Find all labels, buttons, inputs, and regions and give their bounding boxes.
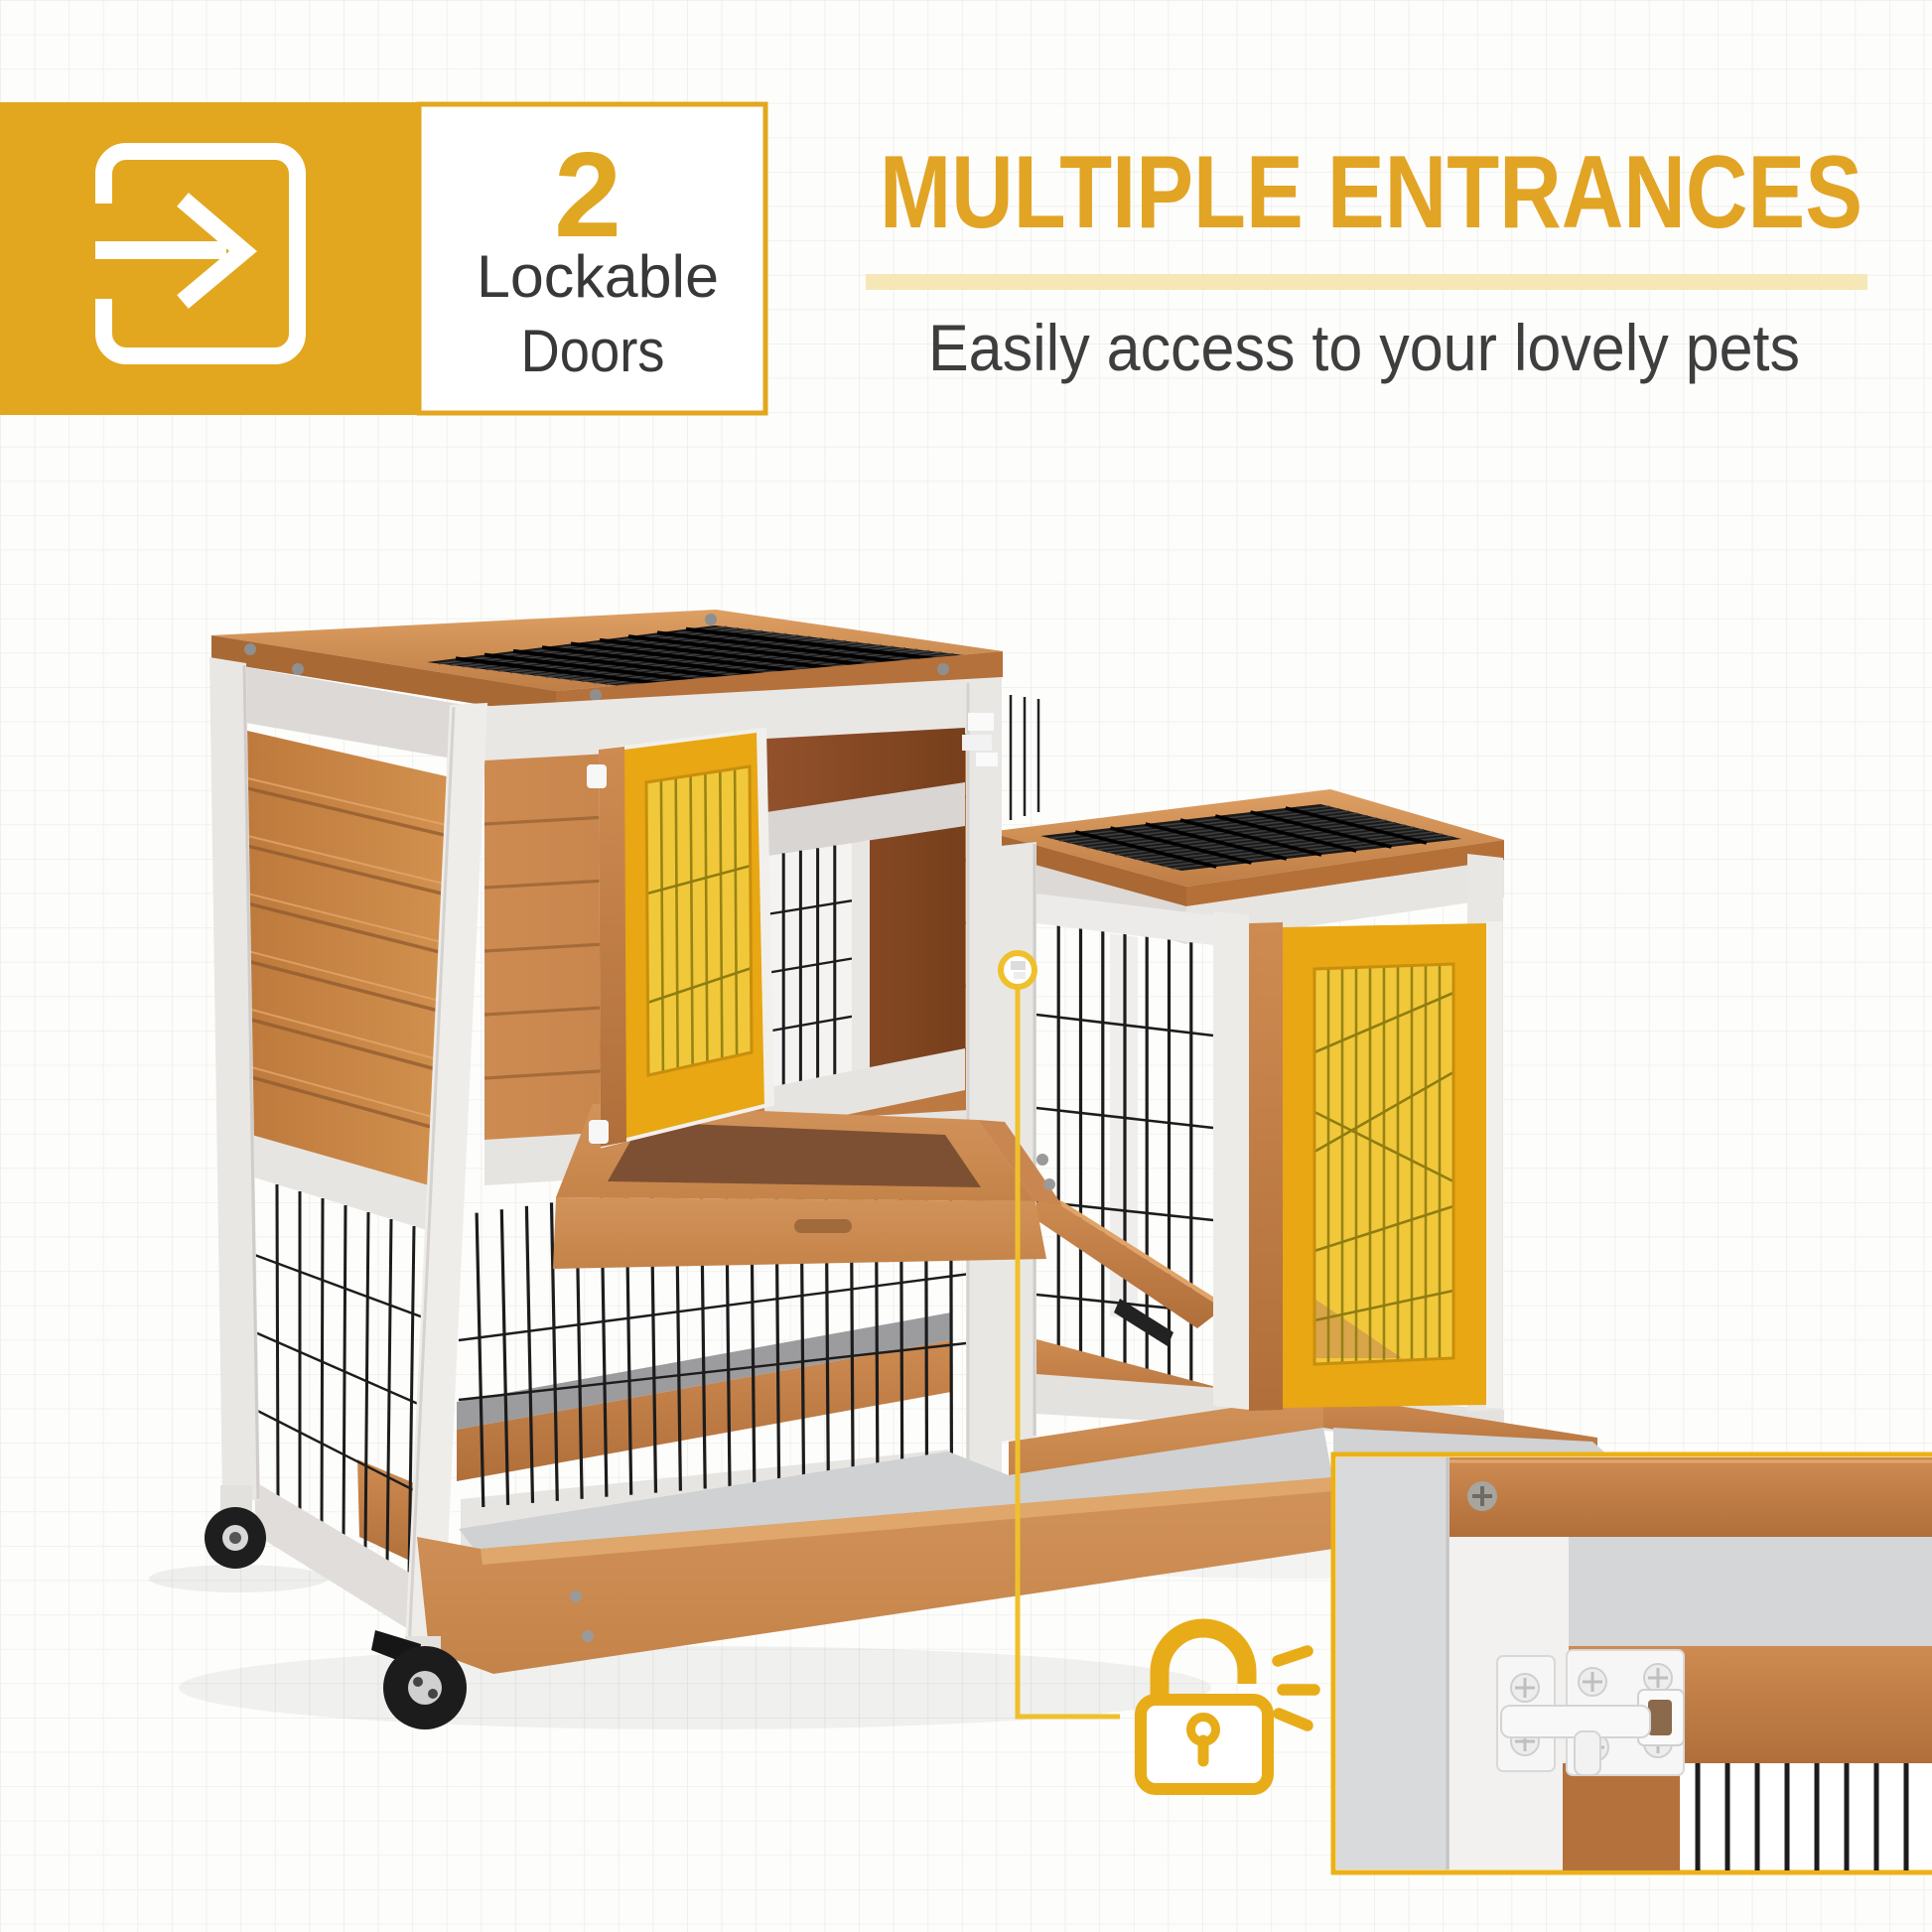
svg-text:MULTIPLE ENTRANCES: MULTIPLE ENTRANCES (880, 135, 1863, 250)
svg-text:2: 2 (554, 127, 621, 262)
svg-text:Lockable: Lockable (477, 243, 719, 310)
svg-text:Easily access to your lovely p: Easily access to your lovely pets (928, 311, 1800, 384)
svg-text:Doors: Doors (521, 318, 665, 384)
